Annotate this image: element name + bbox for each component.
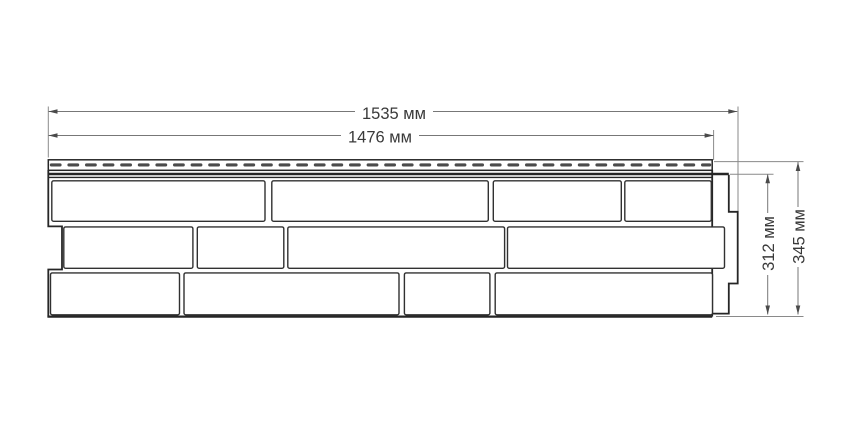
svg-text:1476 мм: 1476 мм (348, 129, 412, 147)
svg-text:345 мм: 345 мм (791, 209, 809, 264)
svg-text:1535 мм: 1535 мм (362, 105, 426, 123)
svg-text:312 мм: 312 мм (760, 216, 778, 271)
